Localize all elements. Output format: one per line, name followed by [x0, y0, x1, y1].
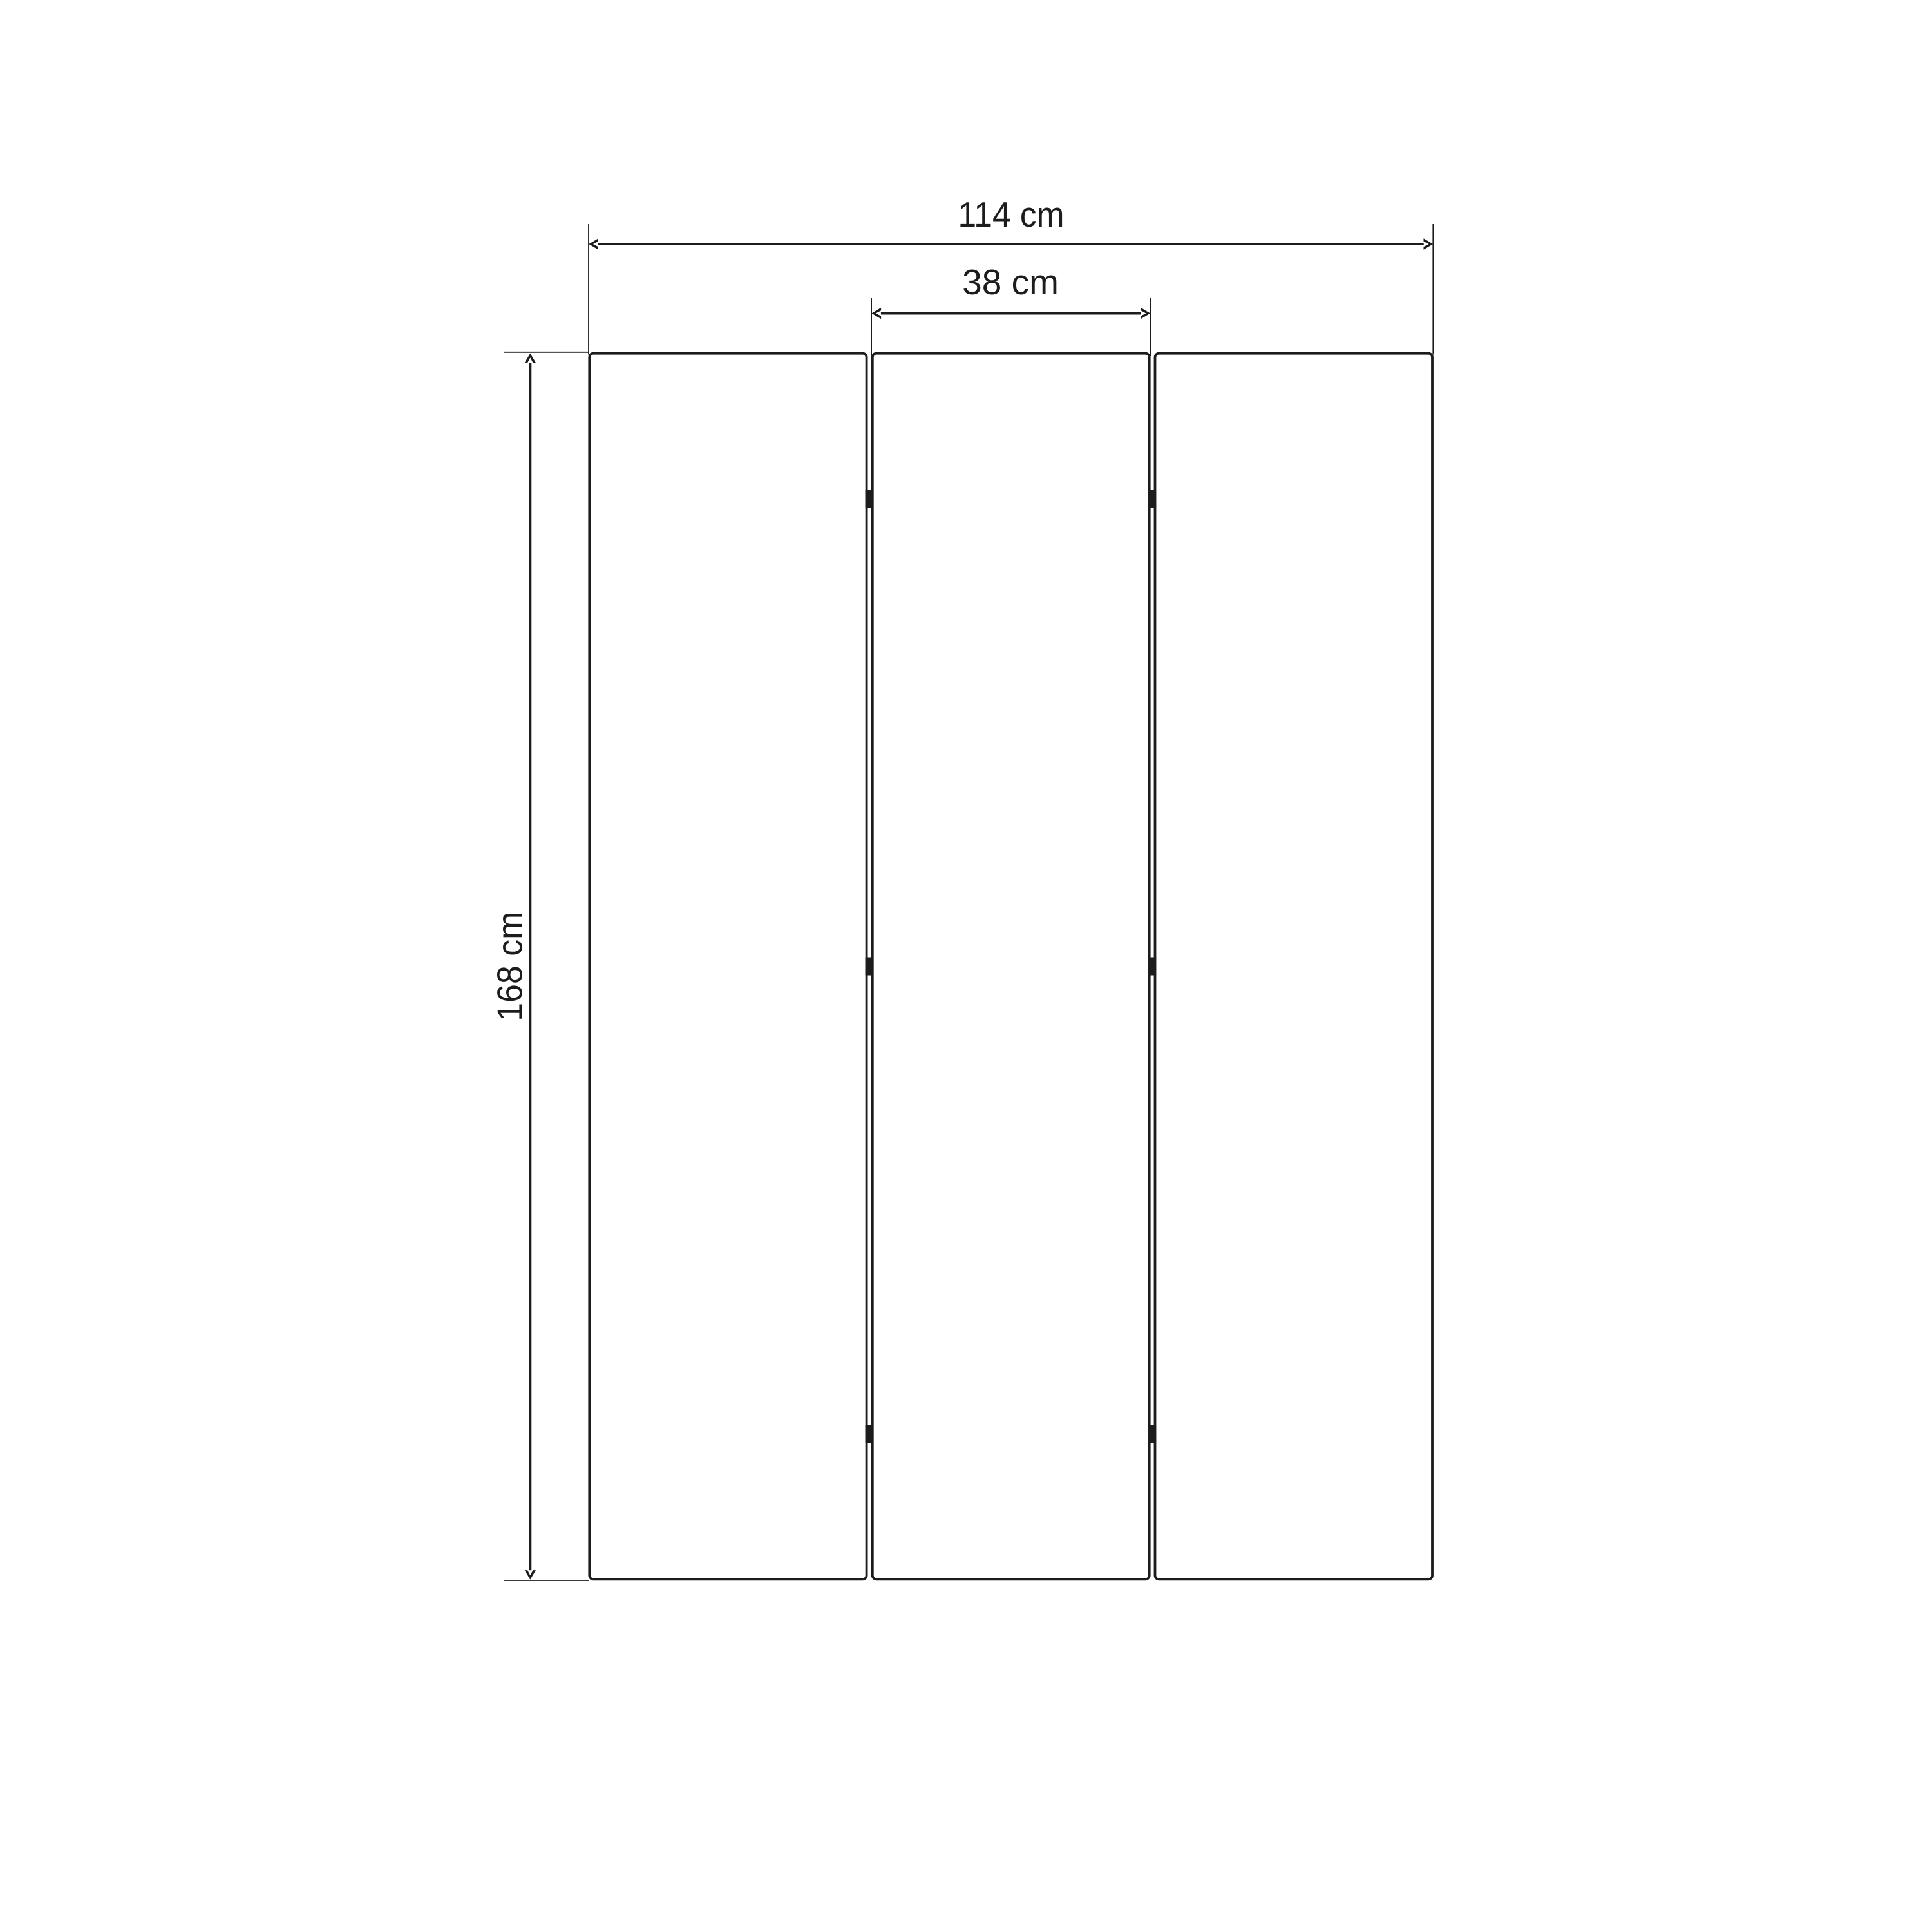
svg-text:168 cm: 168 cm [490, 912, 530, 1021]
svg-text:38 cm: 38 cm [962, 262, 1059, 302]
svg-text:114 cm: 114 cm [958, 194, 1065, 234]
